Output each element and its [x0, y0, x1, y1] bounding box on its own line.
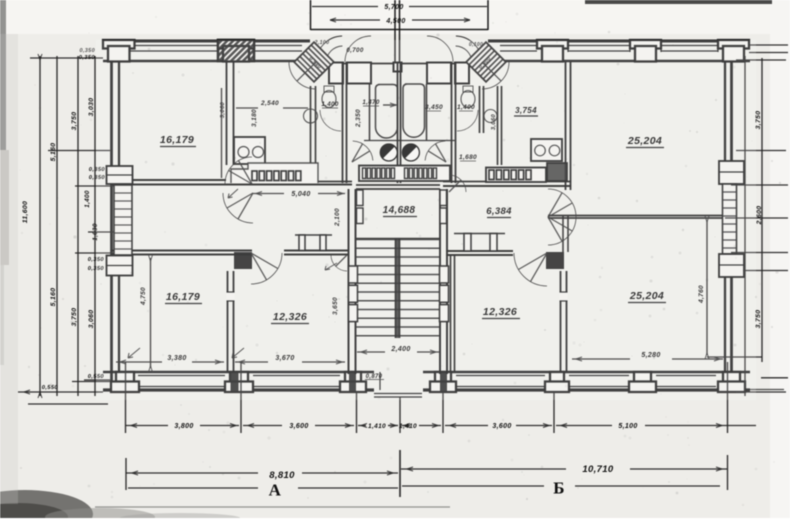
svg-text:A: A	[269, 481, 282, 500]
svg-text:3,600: 3,600	[289, 423, 308, 430]
svg-text:5,700: 5,700	[384, 4, 403, 11]
svg-text:11,600: 11,600	[22, 201, 29, 223]
svg-text:3,800: 3,800	[174, 423, 193, 430]
svg-text:Б: Б	[553, 479, 565, 498]
svg-text:3,030: 3,030	[88, 98, 95, 117]
svg-text:1,410: 1,410	[368, 423, 386, 430]
svg-text:3,750: 3,750	[755, 310, 762, 329]
svg-text:5,160: 5,160	[50, 288, 57, 307]
svg-text:3,600: 3,600	[492, 423, 511, 430]
svg-text:3,750: 3,750	[71, 308, 78, 327]
svg-text:0,350: 0,350	[79, 48, 95, 54]
svg-text:5,100: 5,100	[618, 423, 637, 430]
svg-text:2,600: 2,600	[756, 206, 763, 226]
svg-text:3,750: 3,750	[755, 111, 762, 130]
svg-text:8,810: 8,810	[269, 470, 295, 481]
svg-text:0,550: 0,550	[42, 385, 59, 391]
svg-text:10,710: 10,710	[582, 464, 614, 475]
svg-text:0,350: 0,350	[79, 55, 96, 61]
svg-text:1,400: 1,400	[84, 190, 91, 208]
svg-text:3,750: 3,750	[71, 112, 78, 131]
svg-text:3,060: 3,060	[88, 310, 95, 329]
svg-text:5,160: 5,160	[50, 143, 57, 162]
svg-text:1,410: 1,410	[399, 423, 417, 430]
